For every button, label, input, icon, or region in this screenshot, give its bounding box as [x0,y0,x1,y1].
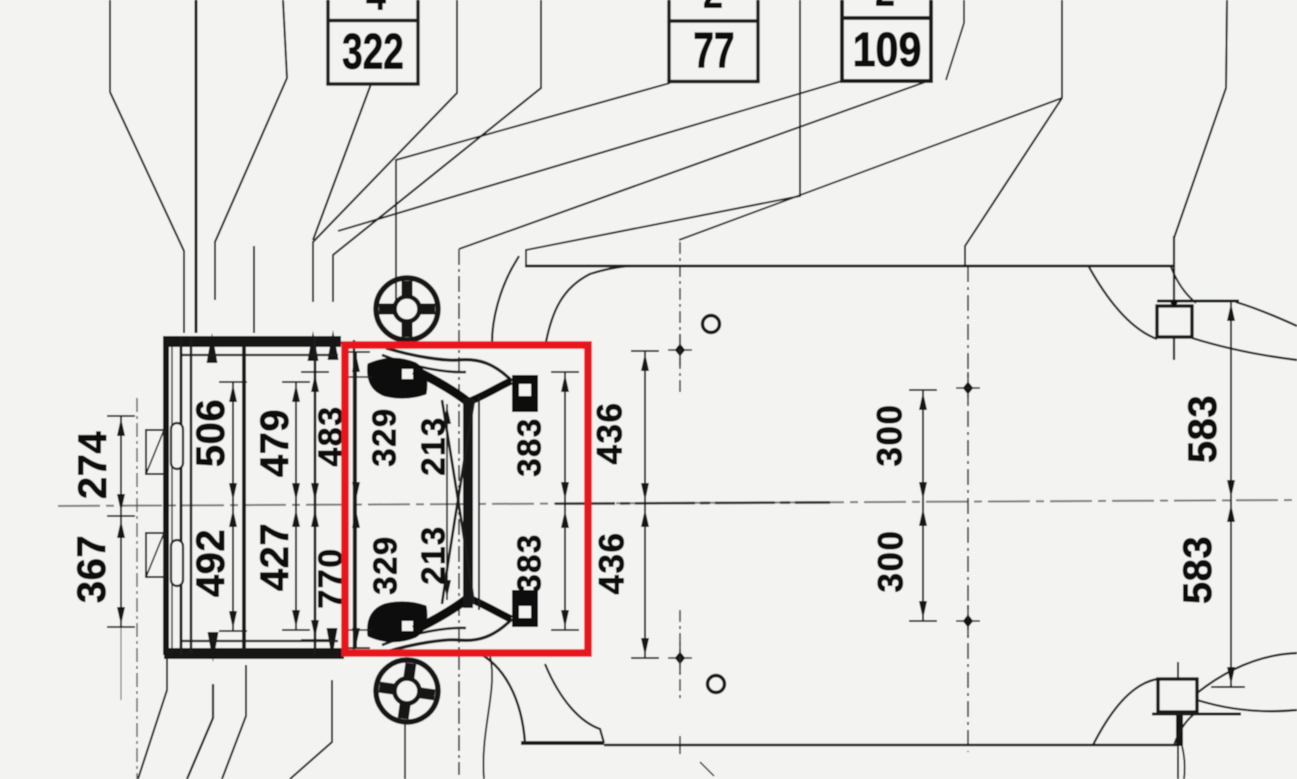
svg-text:109: 109 [853,23,922,77]
svg-text:4: 4 [366,0,386,20]
svg-text:506: 506 [189,399,233,467]
svg-text:213: 213 [415,525,452,585]
svg-text:300: 300 [872,530,911,593]
svg-text:583: 583 [1176,536,1220,604]
svg-text:322: 322 [342,24,404,80]
svg-text:583: 583 [1181,395,1225,463]
svg-text:367: 367 [70,535,114,603]
svg-text:436: 436 [593,532,632,595]
svg-text:436: 436 [591,402,630,465]
svg-text:213: 213 [415,416,452,476]
svg-text:274: 274 [71,431,115,499]
svg-text:2: 2 [875,0,895,16]
svg-text:383: 383 [511,417,548,477]
svg-text:300: 300 [871,404,910,467]
svg-text:427: 427 [253,523,297,591]
svg-text:383: 383 [511,533,548,593]
svg-text:77: 77 [693,23,734,79]
svg-text:2: 2 [703,0,723,18]
svg-text:479: 479 [253,409,297,477]
svg-text:329: 329 [367,535,404,595]
svg-text:492: 492 [189,529,233,597]
svg-text:329: 329 [366,407,403,467]
